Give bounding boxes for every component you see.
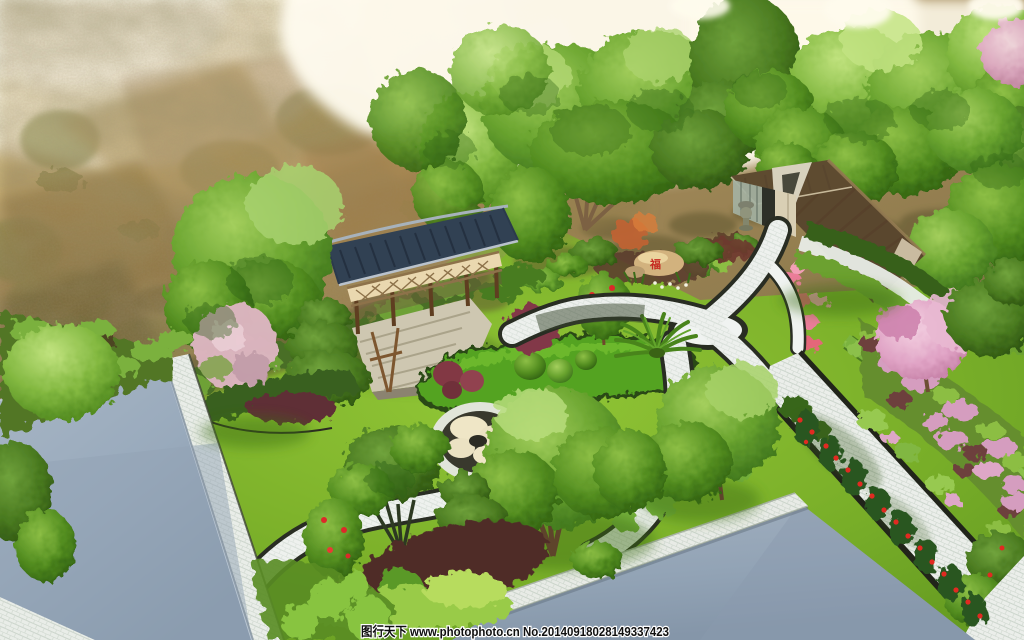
svg-text:图行天下 www.photophoto.cn No.201: 图行天下 www.photophoto.cn No.20140918028149… [361,624,669,639]
svg-text:福: 福 [649,257,661,271]
